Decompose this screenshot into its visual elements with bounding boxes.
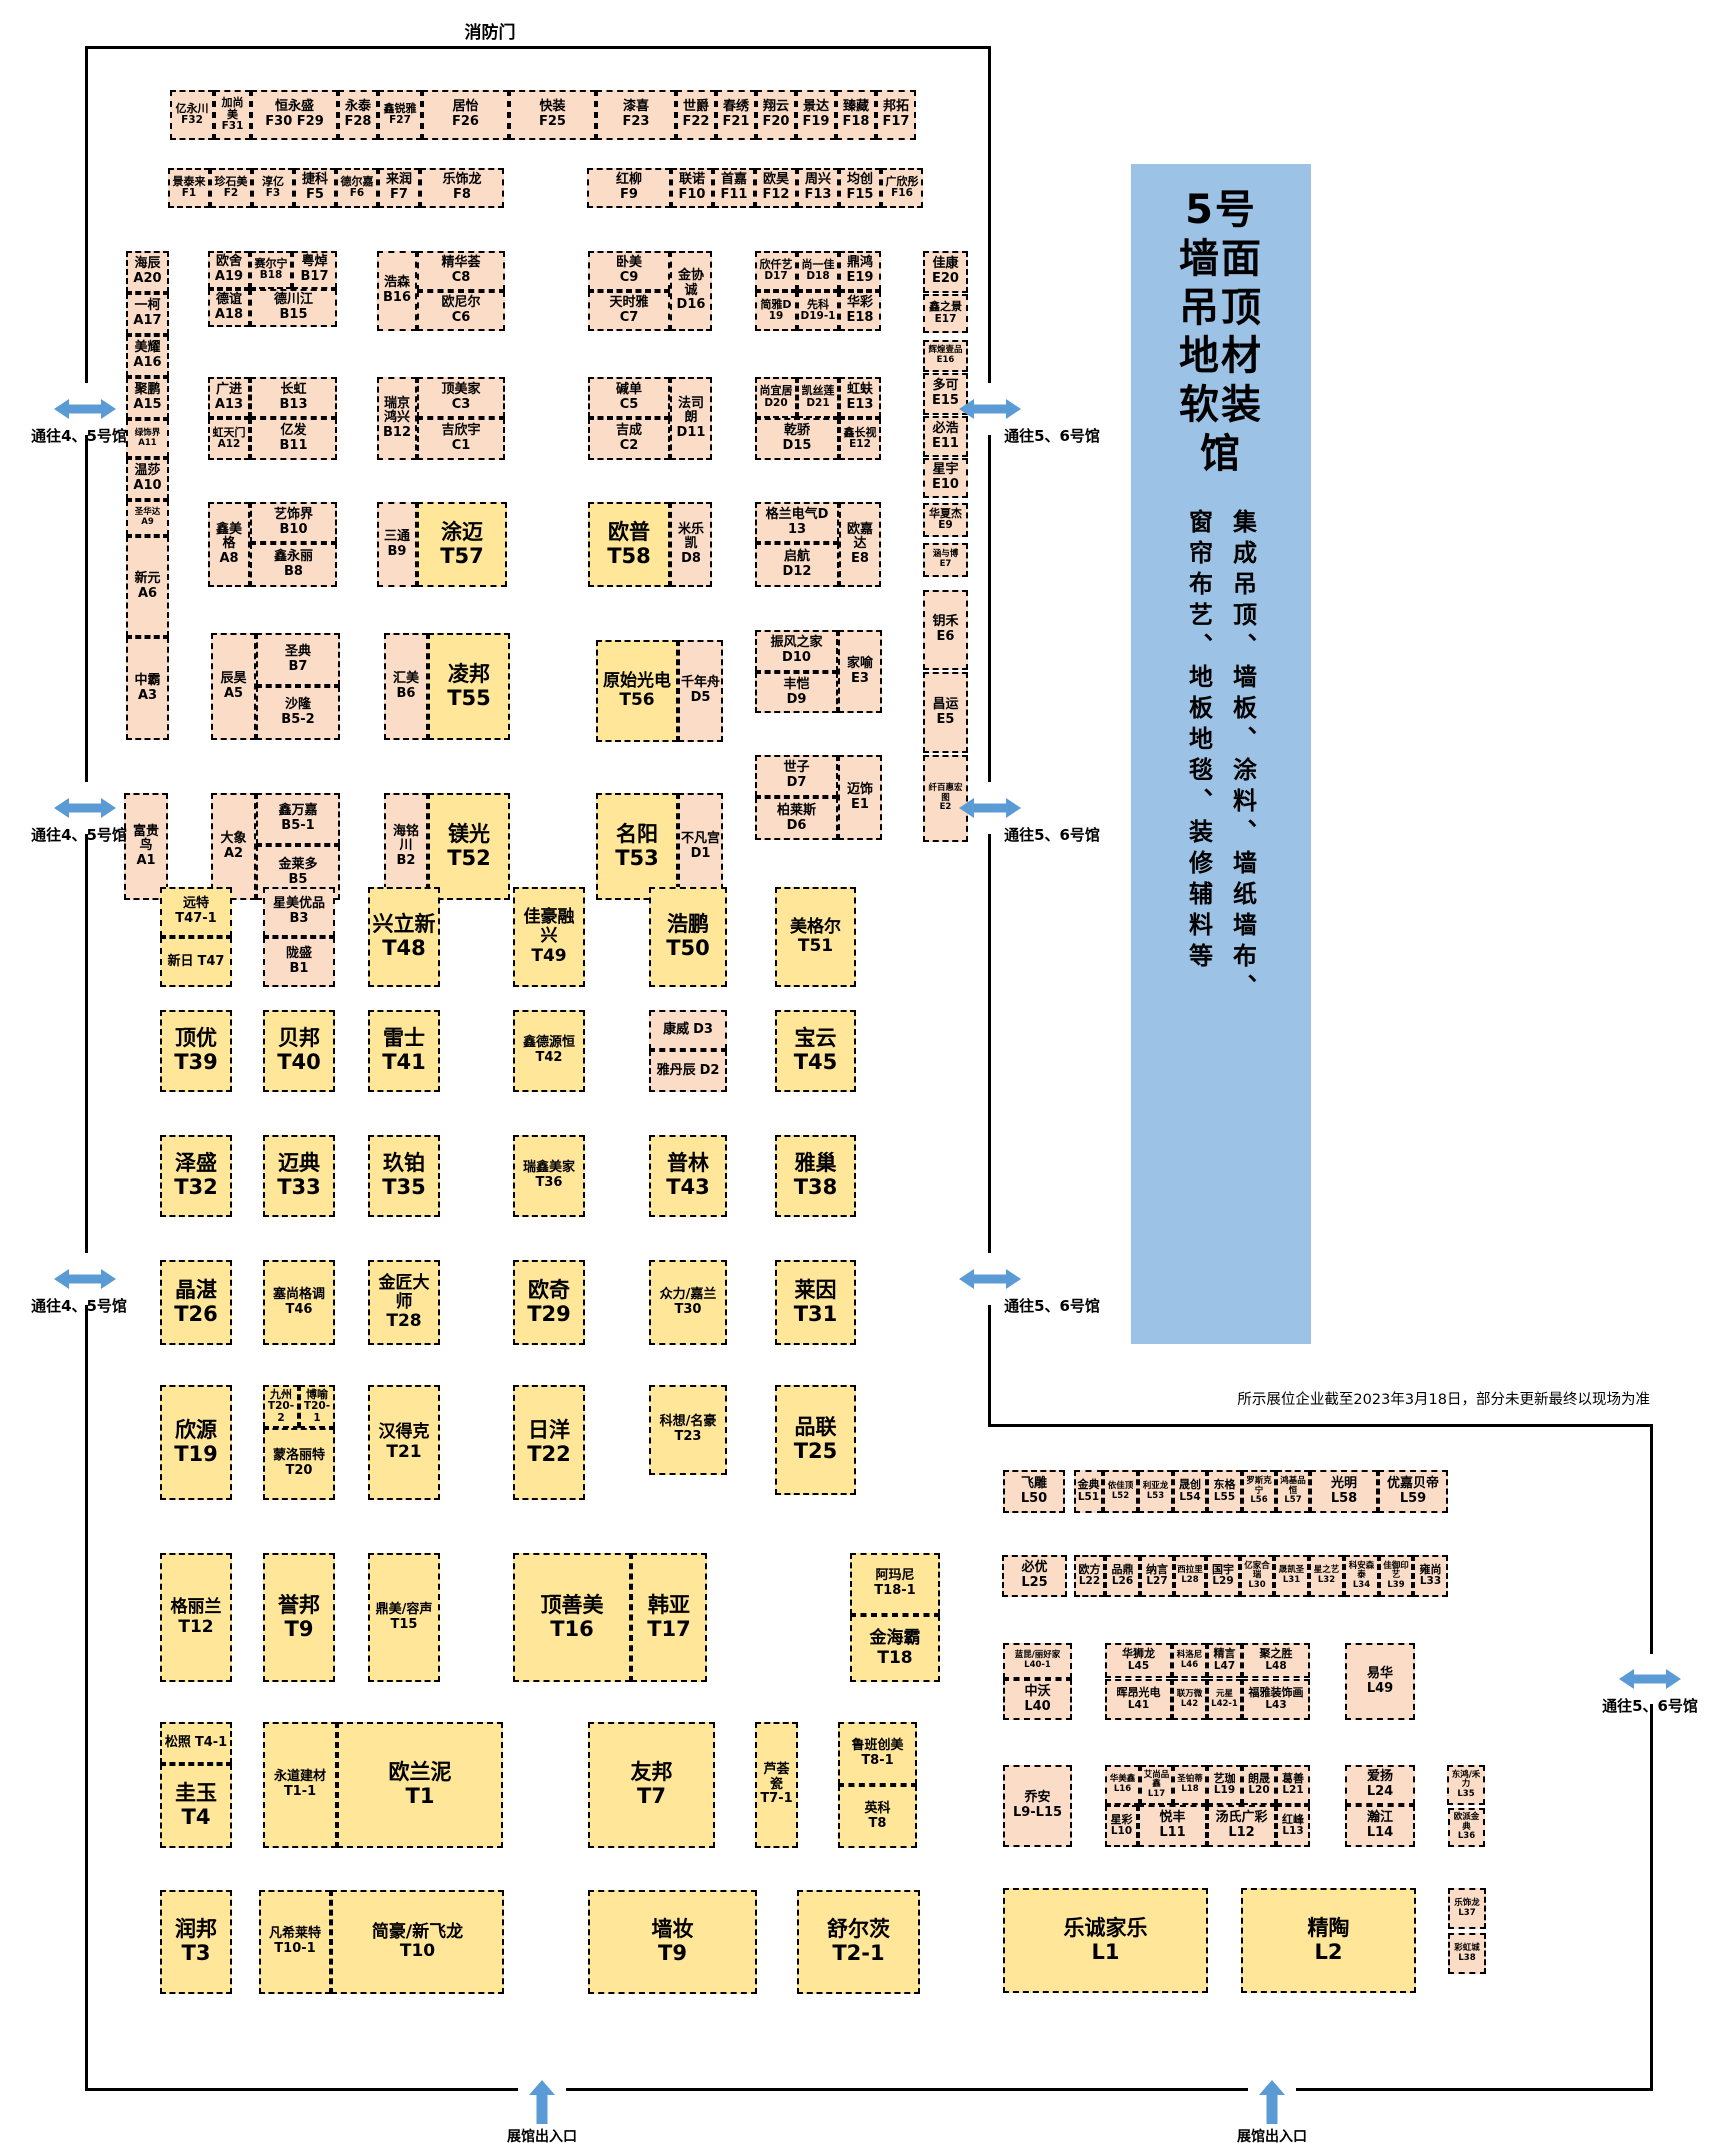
booth-name: 臻藏 xyxy=(843,100,869,115)
booth-name: 沙隆 xyxy=(285,698,311,713)
booth-name: 乾骄 xyxy=(784,424,810,439)
booth-name: 顶优 xyxy=(175,1027,217,1051)
booth-id: T7-1 xyxy=(760,1792,792,1807)
booth-name: 莱因 xyxy=(795,1279,837,1303)
booth-D15: 乾骄D15 xyxy=(755,418,839,460)
booth-C5: 碱单C5 xyxy=(588,377,670,418)
booth-name: 亿发 xyxy=(280,424,306,439)
booth-id: T30 xyxy=(675,1303,702,1318)
arrow-label-to56: 通往5、6号馆 xyxy=(1004,824,1100,845)
booth-id: F32 xyxy=(181,115,203,127)
booth-F17: 邦拓F17 xyxy=(876,90,916,140)
booth-id: T9 xyxy=(658,1942,687,1966)
booth-F12: 欧昊F12 xyxy=(755,168,797,208)
booth-name: 星宇 xyxy=(932,463,958,478)
booth-id: B13 xyxy=(280,398,308,413)
booth-id: E8 xyxy=(851,552,869,567)
booth-id: T46 xyxy=(286,1303,313,1318)
booth-id: T43 xyxy=(666,1176,710,1200)
booth-name: 必优 xyxy=(1021,1561,1047,1576)
booth-name: 雷士 xyxy=(383,1027,425,1051)
booth-name: 富贵鸟 xyxy=(127,825,165,854)
booth-id: B2 xyxy=(397,854,416,869)
booth-name: 艺饰界 xyxy=(274,508,313,523)
booth-name: 东格 xyxy=(1214,1479,1236,1491)
booth-id: C5 xyxy=(620,398,639,413)
booth-id: L41 xyxy=(1128,1700,1149,1712)
booth-id: E19 xyxy=(847,271,874,286)
booth-F2: 珍石美F2 xyxy=(210,168,252,208)
booth-id: A15 xyxy=(133,398,161,413)
booth-id: T55 xyxy=(447,687,491,711)
booth-A12: 虹天门A12 xyxy=(208,418,250,460)
booth-T10-1: 凡希莱特T10-1 xyxy=(259,1890,331,1994)
booth-name: 聚之胜 xyxy=(1260,1648,1293,1660)
booth-A9: 圣华达A9 xyxy=(126,500,169,536)
booth-A20: 海辰A20 xyxy=(126,251,169,293)
booth-L17: 艾尚品鑫L17 xyxy=(1140,1765,1173,1805)
booth-C2: 吉成C2 xyxy=(588,418,670,460)
booth-id: D16 xyxy=(677,298,706,313)
booth-C6: 欧尼尔C6 xyxy=(417,291,505,331)
booth-L34: 科安森泰L34 xyxy=(1344,1555,1379,1597)
booth-id: T51 xyxy=(798,937,833,956)
booth-T8-1: 鲁班创美T8-1 xyxy=(838,1722,917,1785)
booth-id: B5-1 xyxy=(281,819,314,834)
booth-T50: 浩鹏T50 xyxy=(649,887,727,987)
booth-name: 鼎鸿 xyxy=(847,256,873,271)
booth-name: 瑞鑫美家 xyxy=(523,1161,575,1176)
booth-T25: 品联T25 xyxy=(775,1385,856,1495)
booth-name: 乐饰龙 xyxy=(442,173,481,188)
booth-name: 精陶 xyxy=(1308,1917,1350,1941)
booth-id: D17 xyxy=(764,271,787,283)
booth-name: 大象 xyxy=(220,832,246,847)
booth-A2: 大象A2 xyxy=(211,793,256,900)
booth-L47: 精言L47 xyxy=(1207,1643,1242,1678)
booth-F21: 春绣F21 xyxy=(716,90,756,140)
booth-name: 品联 xyxy=(795,1416,837,1440)
booth-name: 凯丝莲 xyxy=(802,385,835,397)
up-arrow-icon xyxy=(529,2080,555,2124)
booth-T31: 莱因T31 xyxy=(775,1260,856,1345)
booth-C3: 顶美家C3 xyxy=(417,377,505,418)
wall-segment xyxy=(1650,1704,1653,2091)
booth-id: T19 xyxy=(174,1443,218,1467)
booth-id: L46 xyxy=(1181,1661,1198,1671)
booth-B17: 粤焯B17 xyxy=(292,251,337,289)
booth-name: 美耀 xyxy=(134,341,160,356)
booth-D5: 千年舟D5 xyxy=(678,640,723,742)
booth-id: A12 xyxy=(218,439,241,451)
booth-T20: 蒙洛丽特T20 xyxy=(263,1428,335,1500)
booth-name: 均创 xyxy=(847,173,873,188)
booth-T33: 迈典T33 xyxy=(263,1135,335,1217)
booth-name: 原始光电 xyxy=(603,672,671,691)
booth-id: E2 xyxy=(940,803,952,813)
booth-id: F2 xyxy=(224,188,238,200)
booth-id: A18 xyxy=(215,308,243,323)
booth-id: T20 xyxy=(286,1464,313,1479)
booth-name: 辰昊 xyxy=(220,672,246,687)
booth-L45: 华狮龙L45 xyxy=(1105,1643,1172,1678)
booth-F32: 亿永川F32 xyxy=(170,90,214,140)
booth-L48: 聚之胜L48 xyxy=(1242,1643,1310,1678)
booth-name: 中霸 xyxy=(134,674,160,689)
booth-id: B6 xyxy=(397,687,416,702)
booth-name: 迈典 xyxy=(278,1152,320,1176)
arrow-label-to56: 通往5、6号馆 xyxy=(1004,425,1100,446)
booth-L26: 品鼎L26 xyxy=(1105,1555,1140,1597)
booth-id: T45 xyxy=(794,1051,838,1075)
booth-id: L40-1 xyxy=(1024,1661,1051,1671)
booth-B9: 三通B9 xyxy=(377,502,417,587)
booth-E3: 家喻E3 xyxy=(838,630,882,713)
booth-name: 欧嘉达 xyxy=(842,523,878,552)
booth-id: T17 xyxy=(647,1618,691,1642)
booth-id: C9 xyxy=(620,271,639,286)
booth-name: 罗斯克宁 xyxy=(1245,1477,1273,1496)
booth-id: T41 xyxy=(382,1051,426,1075)
booth-name: 尚宜居 xyxy=(760,385,793,397)
booth-name: 漆喜 xyxy=(623,100,649,115)
booth-id: B8 xyxy=(284,565,303,580)
booth-id: L43 xyxy=(1265,1700,1286,1712)
booth-E11: 必浩E11 xyxy=(923,416,968,457)
booth-name: 日洋 xyxy=(528,1419,570,1443)
booth-T29: 欧奇T29 xyxy=(513,1260,585,1345)
wall-segment xyxy=(988,46,991,383)
booth-id: D2 xyxy=(700,1064,720,1079)
booth-L13: 红峰L13 xyxy=(1276,1805,1310,1847)
booth-id: A1 xyxy=(136,854,155,869)
booth-T1: 欧兰泥T1 xyxy=(337,1722,503,1848)
booth-id: E9 xyxy=(938,520,952,532)
hall-subtitle-line2: 窗帘布艺、地板地毯、装修辅料等 xyxy=(1182,509,1217,1005)
booth-L33: 雍尚L33 xyxy=(1413,1555,1448,1597)
booth-name: 晖昂光电 xyxy=(1117,1687,1161,1699)
booth-L37: 乐饰龙L37 xyxy=(1448,1888,1486,1929)
booth-name: 鑫之景 xyxy=(929,301,962,313)
booth-name: 康威 xyxy=(663,1023,689,1038)
booth-A18: 德谊A18 xyxy=(208,289,250,327)
booth-T35: 玖铂T35 xyxy=(368,1135,440,1217)
booth-L32: 星之艺L32 xyxy=(1309,1555,1344,1597)
booth-T18: 金海霸T18 xyxy=(850,1615,940,1682)
booth-name: 振风之家 xyxy=(770,636,822,651)
booth-B16: 浩森B16 xyxy=(377,251,417,331)
booth-name: 米乐凯 xyxy=(673,523,709,552)
booth-name: 卧美 xyxy=(616,256,642,271)
booth-id: T20-2 xyxy=(266,1401,296,1425)
booth-id: F7 xyxy=(390,188,408,203)
booth-L9-L15: 乔安L9-L15 xyxy=(1003,1765,1072,1847)
booth-name: 首嘉 xyxy=(721,173,747,188)
booth-name: 红柳 xyxy=(616,173,642,188)
booth-name: 名阳 xyxy=(616,823,658,847)
booth-id: T32 xyxy=(174,1176,218,1200)
booth-A17: 一柯A17 xyxy=(126,293,169,335)
booth-id: F5 xyxy=(306,188,324,203)
booth-F11: 首嘉F11 xyxy=(713,168,755,208)
wall-segment xyxy=(85,435,88,782)
booth-T36: 瑞鑫美家T36 xyxy=(513,1135,585,1217)
booth-id: B17 xyxy=(301,270,329,285)
booth-name: 一柯 xyxy=(134,299,160,314)
booth-B11: 亿发B11 xyxy=(250,418,337,460)
booth-id: L17 xyxy=(1148,1790,1165,1800)
booth-id: T12 xyxy=(178,1618,213,1637)
booth-id: L30 xyxy=(1248,1581,1265,1591)
booth-D6: 柏莱斯D6 xyxy=(755,797,838,840)
booth-id: E16 xyxy=(937,356,955,366)
booth-name: 亿家合瑞 xyxy=(1243,1562,1271,1581)
booth-T48: 兴立新T48 xyxy=(368,887,440,987)
booth-L16: 华美鑫L16 xyxy=(1105,1765,1140,1805)
booth-T47-1: 远特T47-1 xyxy=(160,887,232,937)
booth-id: D3 xyxy=(693,1023,713,1038)
booth-L42-1: 元星L42-1 xyxy=(1207,1679,1242,1720)
booth-name: 景达 xyxy=(803,100,829,115)
booth-name: 邦拓 xyxy=(883,100,909,115)
booth-T17: 韩亚T17 xyxy=(631,1553,707,1682)
booth-name: 凌邦 xyxy=(448,663,490,687)
booth-id: L34 xyxy=(1353,1581,1370,1591)
booth-C9: 卧美C9 xyxy=(588,251,670,291)
booth-L40-1: 蓝昆/丽好家L40-1 xyxy=(1003,1643,1072,1679)
booth-name: 德川江 xyxy=(274,293,313,308)
booth-name: 金海霸 xyxy=(870,1629,921,1648)
booth-name: 恒永盛 xyxy=(275,100,314,115)
booth-name: 世子 xyxy=(783,761,809,776)
booth-name: 不凡宫 xyxy=(681,832,720,847)
booth-id: D18 xyxy=(806,271,829,283)
booth-T55: 凌邦T55 xyxy=(428,633,510,740)
booth-L56: 罗斯克宁L56 xyxy=(1242,1470,1276,1513)
arrow-label-to56: 通往5、6号馆 xyxy=(1004,1295,1100,1316)
booth-F20: 翔云F20 xyxy=(756,90,796,140)
booth-id: F9 xyxy=(620,188,638,203)
booth-id: T35 xyxy=(382,1176,426,1200)
booth-id: L52 xyxy=(1112,1492,1129,1502)
booth-name: 芦荟瓷 xyxy=(758,1763,795,1792)
arrow-label-entrance: 展馆出入口 xyxy=(507,2126,577,2143)
booth-F25: 快装F25 xyxy=(509,90,596,140)
booth-name: 格兰电气D xyxy=(766,508,829,523)
booth-B13: 长虹B13 xyxy=(250,377,337,418)
booth-T32: 泽盛T32 xyxy=(160,1135,232,1217)
wall-segment xyxy=(988,1424,1653,1427)
booth-T43: 普林T43 xyxy=(649,1135,727,1217)
hall-subtitle: 集成吊顶、墙板、涂料、墙纸墙布、 窗帘布艺、地板地毯、装修辅料等 xyxy=(1173,509,1270,1005)
booth-A15: 聚鹏A15 xyxy=(126,377,169,419)
booth-id: L12 xyxy=(1228,1826,1254,1841)
booth-name: 鑫永丽 xyxy=(274,550,313,565)
booth-name: 佳康 xyxy=(932,257,958,272)
booth-id: F18 xyxy=(843,115,870,130)
booth-name: 永道建材 xyxy=(274,1770,326,1785)
booth-C7: 天时雅C7 xyxy=(588,291,670,331)
booth-id: F13 xyxy=(805,188,832,203)
booth-name: 精华荟 xyxy=(441,256,480,271)
booth-D3: 康威D3 xyxy=(649,1010,727,1050)
booth-name: 顶美家 xyxy=(441,383,480,398)
double-arrow-icon xyxy=(54,1267,116,1291)
booth-T9-2: 墙妆T9 xyxy=(588,1890,757,1994)
booth-L18: 圣铂蒂L18 xyxy=(1173,1765,1207,1805)
booth-id: T20-1 xyxy=(302,1401,332,1425)
booth-id: T28 xyxy=(386,1312,421,1331)
booth-id: E12 xyxy=(849,439,871,451)
arrow-label-entrance: 展馆出入口 xyxy=(1237,2126,1307,2143)
booth-id: D15 xyxy=(783,439,812,454)
booth-id: F8 xyxy=(453,188,471,203)
booth-id: L21 xyxy=(1282,1785,1303,1797)
wall-segment xyxy=(566,2088,1248,2091)
booth-name: 德谊 xyxy=(216,293,242,308)
double-arrow-icon xyxy=(959,796,1021,820)
booth-id: D5 xyxy=(691,691,711,706)
booth-name: 永泰 xyxy=(345,100,371,115)
booth-D11: 法司朗D11 xyxy=(670,377,712,460)
booth-id: F11 xyxy=(721,188,748,203)
floorplan-canvas: 消防门 5号墙面吊顶地材软装馆 集成吊顶、墙板、涂料、墙纸墙布、 窗帘布艺、地板… xyxy=(0,0,1723,2143)
booth-T10: 简豪/新飞龙T10 xyxy=(331,1890,504,1994)
booth-name: 翔云 xyxy=(763,100,789,115)
booth-name: 鼎美/容声 xyxy=(376,1603,433,1618)
booth-T42: 鑫德源恒T42 xyxy=(513,1010,585,1092)
booth-T2-1: 舒尔茨T2-1 xyxy=(797,1890,920,1994)
booth-id: T31 xyxy=(794,1303,838,1327)
booth-id: L47 xyxy=(1214,1661,1235,1673)
booth-name: 新日 xyxy=(168,955,194,970)
booth-name: 科安森泰 xyxy=(1347,1562,1376,1581)
booth-F3: 淳亿F3 xyxy=(252,168,294,208)
booth-E6: 钥禾E6 xyxy=(923,590,968,670)
booth-name: 格丽兰 xyxy=(171,1598,222,1617)
wall-segment xyxy=(1650,1424,1653,1654)
booth-name: 鑫德源恒 xyxy=(523,1036,575,1051)
booth-A6: 新元A6 xyxy=(126,536,169,637)
booth-name: 世爵 xyxy=(683,100,709,115)
booth-id: F31 xyxy=(222,121,244,133)
booth-name: 英科 xyxy=(864,1802,890,1817)
double-arrow-icon xyxy=(54,796,116,820)
booth-id: E11 xyxy=(932,437,959,452)
booth-id: D7 xyxy=(787,776,807,791)
booth-T23: 科想/名豪T23 xyxy=(649,1385,727,1475)
arrow-label-to45: 通往4、5号馆 xyxy=(31,824,127,845)
booth-id: L27 xyxy=(1146,1576,1167,1588)
booth-id: E7 xyxy=(940,560,952,570)
booth-id: C8 xyxy=(452,271,471,286)
booth-name: 福雅装饰画 xyxy=(1249,1687,1304,1699)
booth-id: L50 xyxy=(1021,1492,1047,1507)
booth-id: L38 xyxy=(1458,1954,1475,1964)
booth-T1-1: 永道建材T1-1 xyxy=(263,1722,337,1848)
booth-name: 简豪/新飞龙 xyxy=(372,1923,463,1942)
booth-id: L13 xyxy=(1282,1826,1303,1838)
booth-name: 欧奇 xyxy=(528,1279,570,1303)
booth-name: 聚鹏 xyxy=(134,383,160,398)
booth-id: L9-L15 xyxy=(1013,1806,1062,1821)
arrow-label-to56: 通往5、6号馆 xyxy=(1602,1695,1698,1716)
booth-name: 天时雅 xyxy=(609,296,648,311)
booth-id: C6 xyxy=(452,311,471,326)
double-arrow-icon xyxy=(959,397,1021,421)
booth-name: 精言 xyxy=(1214,1648,1236,1660)
booth-id: L11 xyxy=(1159,1826,1185,1841)
booth-name: 汉得克 xyxy=(379,1423,430,1442)
booth-F15: 均创F15 xyxy=(839,168,881,208)
booth-name: 欧舍 xyxy=(216,255,242,270)
booth-L22: 欧方L22 xyxy=(1074,1555,1105,1597)
booth-name: 泽盛 xyxy=(175,1152,217,1176)
booth-L51: 金典L51 xyxy=(1074,1470,1103,1513)
booth-L55: 东格L55 xyxy=(1207,1470,1242,1513)
booth-L46: 科洛尼L46 xyxy=(1172,1643,1207,1678)
booth-name: 普林 xyxy=(667,1152,709,1176)
booth-D10: 振风之家D10 xyxy=(755,630,838,672)
booth-F22: 世爵F22 xyxy=(676,90,716,140)
booth-id: T23 xyxy=(675,1430,702,1445)
booth-T57: 涂迈T57 xyxy=(417,502,507,587)
booth-id: E13 xyxy=(847,398,874,413)
booth-B1: 陇盛B1 xyxy=(263,937,335,987)
booth-id: F19 xyxy=(803,115,830,130)
booth-id: T21 xyxy=(386,1443,421,1462)
booth-id: T2-1 xyxy=(832,1942,884,1966)
booth-name: 昌运 xyxy=(932,698,958,713)
booth-B8: 鑫永丽B8 xyxy=(250,543,337,587)
booth-L52: 依佳顶L52 xyxy=(1103,1470,1138,1513)
booth-id: A9 xyxy=(141,518,154,528)
booth-name: 雅巢 xyxy=(795,1152,837,1176)
booth-F8: 乐饰龙F8 xyxy=(420,168,504,208)
booth-D1: 不凡宫D1 xyxy=(678,793,723,900)
booth-T46: 塞尚格调T46 xyxy=(263,1260,335,1345)
booth-id: B5 xyxy=(289,873,308,888)
booth-D17: 欣仟艺D17 xyxy=(755,251,797,291)
booth-A1: 富贵鸟A1 xyxy=(124,793,168,900)
booth-id: L56 xyxy=(1250,1496,1267,1506)
booth-id: T10 xyxy=(400,1942,435,1961)
booth-L11: 悦丰L11 xyxy=(1138,1805,1207,1847)
booth-L27: 纳言L27 xyxy=(1140,1555,1174,1597)
booth-id: T57 xyxy=(440,545,484,569)
booth-T16: 顶善美T16 xyxy=(513,1553,631,1682)
booth-id: L58 xyxy=(1331,1492,1357,1507)
booth-id: T18 xyxy=(877,1649,912,1668)
booth-id: L42-1 xyxy=(1211,1700,1238,1710)
booth-F26: 居怡F26 xyxy=(422,90,509,140)
booth-name: 启航 xyxy=(784,550,810,565)
booth-name: 乔安 xyxy=(1024,1791,1050,1806)
booth-L12: 汤氏广彩L12 xyxy=(1207,1805,1276,1847)
booth-name: 丰恺 xyxy=(783,678,809,693)
booth-id: A5 xyxy=(224,687,243,702)
booth-T40: 贝邦T40 xyxy=(263,1010,335,1092)
booth-B7: 圣典B7 xyxy=(256,633,340,686)
double-arrow-icon xyxy=(959,1267,1021,1291)
booth-id: L36 xyxy=(1458,1832,1475,1842)
booth-name: 科想/名豪 xyxy=(660,1415,717,1430)
booth-T28: 金匠大师T28 xyxy=(368,1260,440,1345)
booth-B12: 瑞京鸿兴B12 xyxy=(377,377,417,460)
arrow-label-to45: 通往4、5号馆 xyxy=(31,1295,127,1316)
booth-E16: 辉煌壹品E16 xyxy=(923,340,968,372)
booth-F7: 来润F7 xyxy=(378,168,420,208)
